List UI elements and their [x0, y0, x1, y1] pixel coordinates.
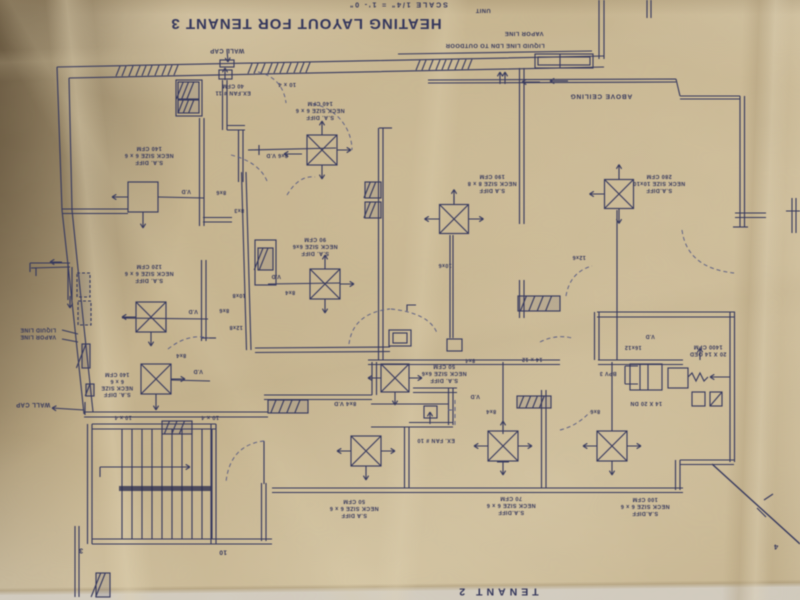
- svg-text:NECK SIZE 6 x 6: NECK SIZE 6 x 6: [329, 505, 378, 511]
- svg-text:V.D: V.D: [181, 188, 191, 194]
- svg-text:NECK SIZE 6x6: NECK SIZE 6x6: [421, 370, 466, 376]
- svg-text:14 X 20 DN: 14 X 20 DN: [630, 400, 662, 406]
- svg-text:V.D: V.D: [193, 368, 203, 374]
- svg-text:8x6: 8x6: [216, 189, 226, 195]
- svg-text:8x6: 8x6: [219, 307, 229, 313]
- svg-text:NECK SIZE 6 x 6: NECK SIZE 6 x 6: [295, 107, 344, 113]
- svg-text:NECK SIZE 6 x 6: NECK SIZE 6 x 6: [486, 502, 535, 508]
- svg-text:S.A. DIFF: S.A. DIFF: [301, 250, 329, 256]
- svg-text:S.A DIFF: S.A DIFF: [479, 187, 505, 193]
- svg-text:50 CFM: 50 CFM: [433, 363, 455, 369]
- svg-text:8x6 V.D: 8x6 V.D: [266, 152, 288, 158]
- svg-text:50 CFM: 50 CFM: [343, 498, 365, 504]
- svg-text:V.D: V.D: [470, 393, 480, 399]
- svg-text:VAPOR LINE: VAPOR LINE: [505, 30, 544, 36]
- svg-text:WALL CAP: WALL CAP: [16, 401, 50, 407]
- svg-text:S.A. DIFF: S.A. DIFF: [103, 391, 131, 397]
- svg-text:VAPOR LINE: VAPOR LINE: [20, 334, 56, 340]
- svg-text:V.D: V.D: [271, 273, 281, 279]
- svg-text:NECK SIZE 8 x 8: NECK SIZE 8 x 8: [467, 180, 516, 186]
- svg-text:100 CFM: 100 CFM: [632, 496, 657, 502]
- svg-text:8x3: 8x3: [234, 207, 244, 213]
- svg-text:EX. FAN # 10: EX. FAN # 10: [417, 437, 455, 443]
- svg-text:140 CFM: 140 CFM: [307, 100, 332, 106]
- svg-text:8x4: 8x4: [176, 352, 186, 358]
- svg-text:NECK SIZE 6 x 6: NECK SIZE 6 x 6: [620, 503, 669, 509]
- svg-text:EX.FAN # 11: EX.FAN # 11: [215, 90, 251, 96]
- svg-text:S.A. DIFF: S.A. DIFF: [135, 277, 163, 283]
- svg-text:BPV 3: BPV 3: [600, 370, 617, 376]
- svg-text:8x6: 8x6: [590, 408, 600, 414]
- svg-text:S.A. DIFF: S.A. DIFF: [135, 159, 163, 165]
- svg-text:LIQUID LINE LDN TO OUTDOOR: LIQUID LINE LDN TO OUTDOOR: [445, 42, 545, 48]
- svg-text:S.A. DIFF: S.A. DIFF: [430, 377, 458, 383]
- svg-text:16x12: 16x12: [625, 344, 642, 350]
- svg-text:140 CFM: 140 CFM: [105, 371, 130, 377]
- svg-text:NECK SIZE 10x10: NECK SIZE 10x10: [633, 180, 685, 186]
- svg-text:190 CFM: 190 CFM: [479, 173, 504, 179]
- svg-text:SCALE 1/4" = 1'- 0": SCALE 1/4" = 1'- 0": [348, 1, 448, 10]
- svg-text:NECK SIZE: NECK SIZE: [101, 384, 133, 390]
- svg-text:120 CFM: 120 CFM: [136, 263, 161, 269]
- svg-text:8x4: 8x4: [465, 357, 475, 363]
- svg-text:S.A. DIFF: S.A. DIFF: [306, 114, 334, 120]
- svg-text:10x8: 10x8: [232, 292, 246, 298]
- svg-text:12x8: 12x8: [229, 324, 243, 330]
- svg-text:ABOVE CEILING: ABOVE CEILING: [570, 93, 632, 100]
- svg-text:20 X 14 OED: 20 X 14 OED: [690, 351, 727, 357]
- svg-text:HEATING LAYOUT FOR TENANT: HEATING LAYOUT FOR TENANT 3: [170, 15, 441, 32]
- svg-text:LIQUID LINE: LIQUID LINE: [20, 327, 56, 333]
- svg-text:8x4: 8x4: [285, 289, 295, 295]
- svg-text:280 CFM: 280 CFM: [646, 173, 671, 179]
- svg-text:NECK SIZE 6 x 6: NECK SIZE 6 x 6: [124, 152, 173, 158]
- svg-text:10 x 4: 10 x 4: [278, 81, 296, 87]
- svg-text:70 CFM: 70 CFM: [500, 495, 522, 501]
- svg-text:10 x 4: 10 x 4: [114, 414, 131, 420]
- svg-text:10: 10: [219, 549, 227, 556]
- svg-text:4: 4: [773, 542, 778, 551]
- svg-text:140 CFM: 140 CFM: [136, 145, 161, 151]
- svg-text:6 x 6: 6 x 6: [110, 378, 124, 384]
- svg-text:10x6: 10x6: [438, 262, 452, 268]
- svg-text:10 x 4: 10 x 4: [201, 414, 219, 420]
- svg-text:S.A.DIFF: S.A.DIFF: [498, 509, 524, 515]
- svg-text:8x4: 8x4: [486, 408, 496, 414]
- svg-text:TENANT 2: TENANT 2: [455, 585, 538, 597]
- svg-text:NECK SIZE 6 x 6: NECK SIZE 6 x 6: [124, 270, 173, 276]
- svg-text:S.A.DIFF: S.A.DIFF: [632, 510, 658, 516]
- svg-text:UNIT: UNIT: [475, 7, 490, 13]
- svg-text:V.D: V.D: [188, 308, 198, 314]
- svg-text:S.A.DIFF: S.A.DIFF: [646, 187, 672, 193]
- svg-text:3: 3: [79, 547, 83, 554]
- svg-text:40 CFM: 40 CFM: [222, 83, 244, 89]
- svg-text:90 CFM: 90 CFM: [304, 236, 326, 242]
- svg-text:S.A DIFF: S.A DIFF: [341, 512, 367, 518]
- svg-text:NECK SIZE 6x6: NECK SIZE 6x6: [292, 243, 337, 249]
- svg-text:8x4 V.D: 8x4 V.D: [334, 400, 357, 406]
- svg-text:V.D: V.D: [645, 333, 654, 339]
- svg-text:1400 CFM: 1400 CFM: [694, 344, 723, 350]
- svg-text:14 x 12: 14 x 12: [522, 356, 543, 362]
- svg-text:12x6: 12x6: [572, 254, 586, 260]
